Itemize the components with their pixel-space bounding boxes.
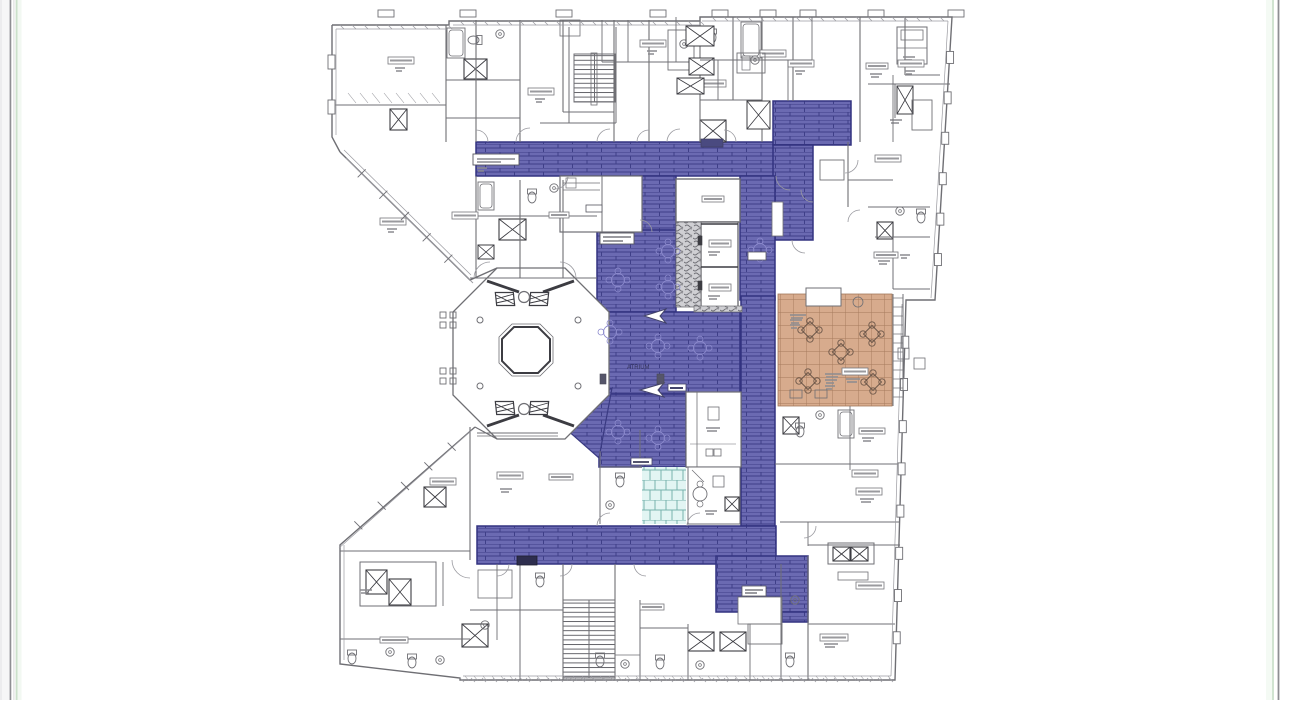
svg-text:ATRIUM: ATRIUM [627,365,650,371]
